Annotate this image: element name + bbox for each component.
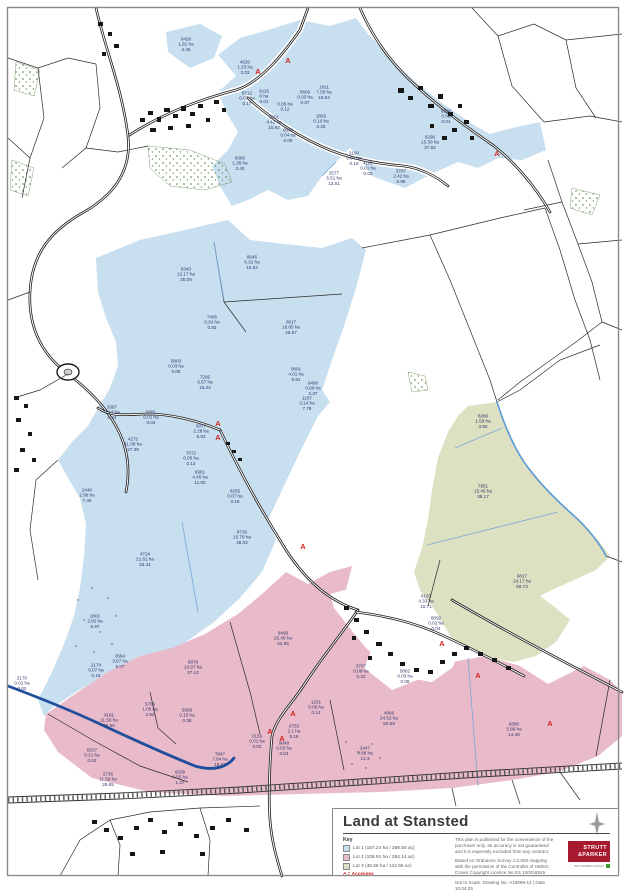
logo-line2: &PARKER (578, 852, 607, 858)
parcel-label: 82080 ha0.01 (441, 109, 452, 124)
access-marker: A (267, 727, 273, 736)
logo-sub-text: BNP PARIBAS GROUP (575, 864, 604, 868)
key-row-lot1: Lot 1 (157.24 ha / 388.55 ac) (343, 845, 447, 852)
access-marker: A (300, 542, 306, 551)
title-rule (343, 833, 610, 834)
access-marker: A (215, 433, 221, 442)
key-row-lot3: Lot 3 (45.55 ha / 112.55 ac) (343, 863, 447, 870)
strutt-parker-logo: STRUTT &PARKER BNP PARIBAS GROUP (564, 837, 610, 895)
lot3-label: Lot 3 (45.55 ha / 112.55 ac) (353, 864, 412, 869)
access-marker: A (255, 67, 261, 76)
parcel-label: 25775.51 ha13.61 (326, 171, 342, 186)
access-marker: A (475, 671, 481, 680)
parcel-label: 21700.01 ha0.02 (14, 676, 30, 691)
access-marker: A (290, 709, 296, 718)
disclaimer-text: This plan is published for the convenien… (455, 837, 556, 855)
bnp-green-icon (606, 864, 610, 868)
lot1-label: Lot 1 (157.24 ha / 388.55 ac) (353, 846, 415, 851)
lot3-swatch (343, 863, 350, 870)
lot1-swatch (343, 845, 350, 852)
key-row-lot2: Lot 2 (106.91 ha / 264.14 ac) (343, 854, 447, 861)
access-marker: A (279, 734, 285, 743)
parcel-label: 91150 ha0.01 (259, 89, 269, 104)
logo-subline: BNP PARIBAS GROUP (575, 864, 610, 868)
map-sheet: { "title_block": { "title": "Land at Sta… (0, 0, 626, 883)
key-heading: Key (343, 837, 447, 843)
access-marker: A (494, 149, 500, 158)
map-canvas: 64281.81 ha4.4646201.23 ha3.0387120.07 h… (0, 0, 626, 883)
map-key: Key Lot 1 (157.24 ha / 388.55 ac) Lot 2 … (343, 837, 447, 895)
title-block-notes: This plan is published for the convenien… (455, 837, 556, 895)
logo-box: STRUTT &PARKER (568, 841, 610, 862)
plan-title: Land at Stansted (343, 813, 610, 830)
title-block: Land at Stansted Key Lot 1 (157.24 ha / … (332, 808, 619, 876)
os-credit-text: Based on Ordnance Survey 1:2,500 mapping… (455, 858, 556, 876)
access-marker: A (215, 419, 221, 428)
access-marker: A (547, 719, 553, 728)
access-marker: A (439, 639, 445, 648)
drawing-info-text: Not to Scale. Drawing No. V16999-12 | Da… (455, 880, 556, 892)
access-note: A = Accesses (343, 872, 447, 877)
north-compass-icon (588, 811, 606, 842)
access-marker: A (285, 56, 291, 65)
lot2-label: Lot 2 (106.91 ha / 264.14 ac) (353, 855, 415, 860)
lot2-swatch (343, 854, 350, 861)
